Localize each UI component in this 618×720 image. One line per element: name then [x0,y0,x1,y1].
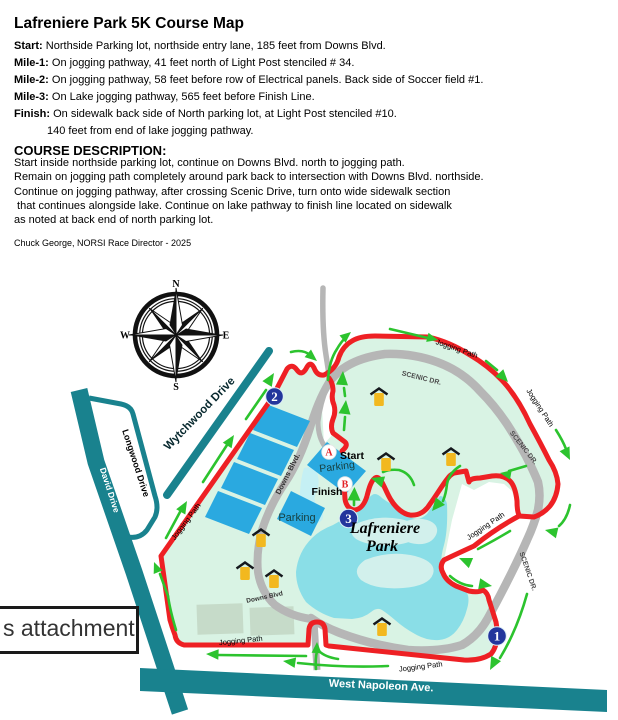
svg-text:2: 2 [271,389,278,404]
svg-text:Jogging Path: Jogging Path [398,659,443,673]
svg-text:Finish: Finish [312,486,343,498]
svg-text:Parking: Parking [278,512,315,524]
svg-text:Park: Park [365,538,398,555]
svg-text:1: 1 [494,629,501,644]
svg-text:N: N [172,279,180,290]
svg-text:E: E [223,331,230,342]
svg-text:A: A [325,448,333,459]
svg-text:W: W [120,331,130,342]
svg-text:Lafreniere: Lafreniere [349,520,420,537]
svg-text:B: B [342,480,349,491]
svg-text:S: S [173,382,179,393]
